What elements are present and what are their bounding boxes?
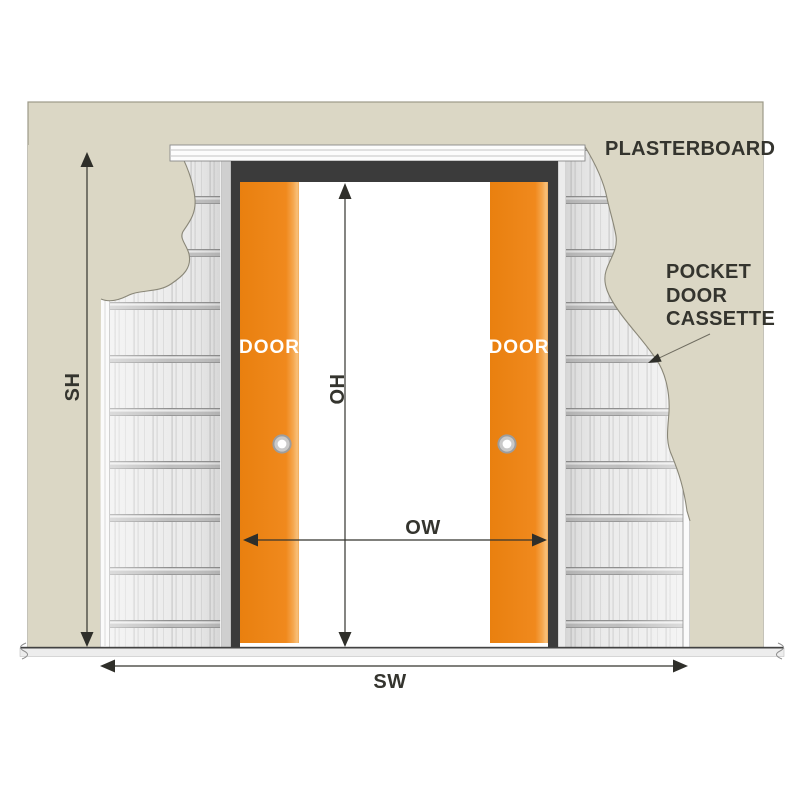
frame-header xyxy=(231,161,558,182)
right-door: DOOR xyxy=(489,182,550,643)
frame-jamb-left xyxy=(231,182,240,648)
door-pull xyxy=(497,434,516,453)
track-board xyxy=(170,145,585,161)
plasterboard-label: PLASTERBOARD xyxy=(605,138,775,160)
sw-arrow-right xyxy=(673,660,688,673)
cassette-inner-stud xyxy=(221,146,231,648)
door-panel xyxy=(240,182,299,643)
sw-label: SW xyxy=(373,671,406,693)
ow-label: OW xyxy=(405,517,440,539)
frame-jamb-right xyxy=(548,182,558,648)
head-track xyxy=(170,145,585,161)
dimension-sw: SW xyxy=(100,660,688,694)
diagram-canvas: DOOR DOOR SH OH xyxy=(0,0,800,800)
left-door: DOOR xyxy=(239,182,300,643)
callout-line-2: DOOR xyxy=(666,285,727,307)
floor-line xyxy=(20,647,784,649)
door-panel xyxy=(490,182,548,643)
floor-slab xyxy=(20,648,784,657)
pocket-door-diagram: DOOR DOOR SH OH xyxy=(0,0,800,800)
callout-line-3: CASSETTE xyxy=(666,308,775,330)
oh-label: OH xyxy=(327,374,349,405)
door-label: DOOR xyxy=(239,337,300,358)
sw-arrow-left xyxy=(100,660,115,673)
door-label: DOOR xyxy=(489,337,550,358)
cassette-inner-stud xyxy=(558,146,566,648)
door-pull xyxy=(272,434,291,453)
callout-line-1: POCKET xyxy=(666,261,751,283)
sh-label: SH xyxy=(62,373,84,402)
